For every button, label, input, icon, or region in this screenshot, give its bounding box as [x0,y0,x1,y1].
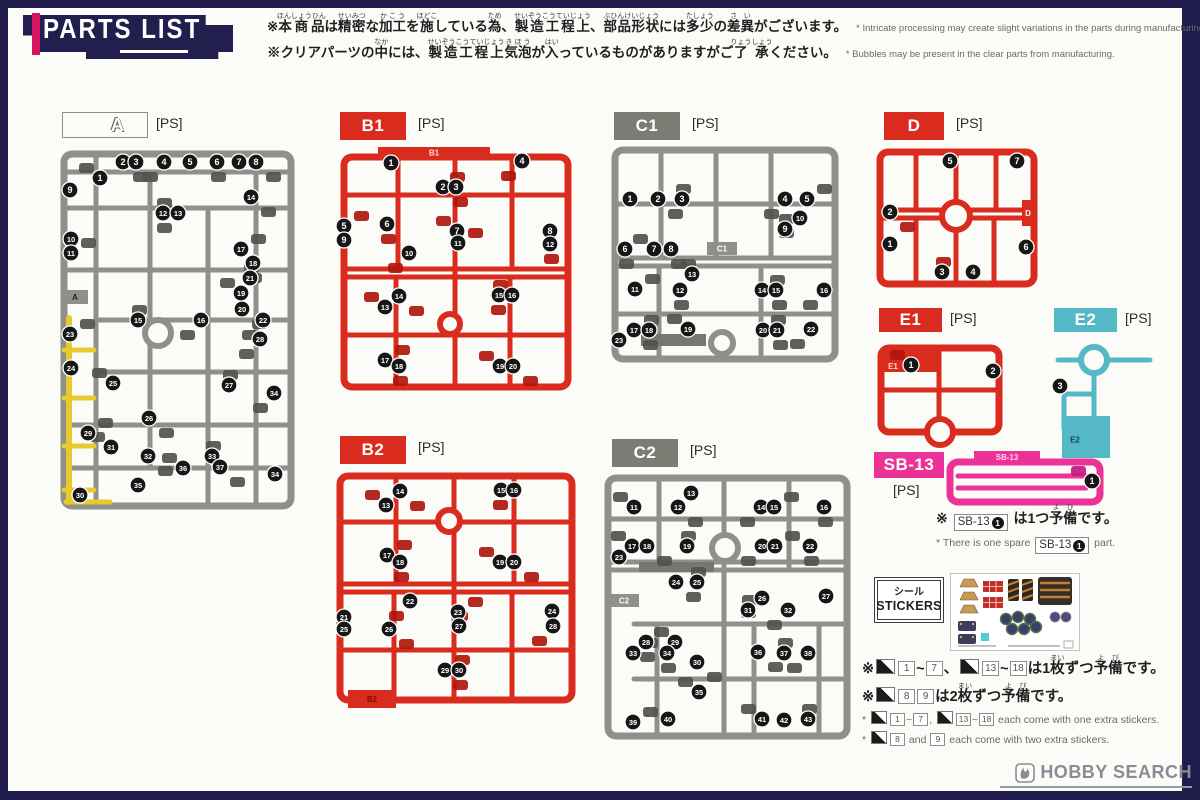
svg-text:30: 30 [76,491,84,500]
part-number-C2-40: 40 [660,711,676,727]
part-number-B2-22: 22 [402,593,418,609]
runner-sprue-SB-13: SB-131 [946,450,1108,508]
svg-text:5: 5 [804,194,809,204]
part-number-C1-19: 19 [680,321,696,337]
part-number-SB-13-1: 1 [1084,473,1100,489]
svg-text:16: 16 [510,486,518,495]
svg-text:17: 17 [628,542,636,551]
svg-text:D: D [1025,209,1031,218]
svg-text:18: 18 [643,542,651,551]
manufacturing-notes: ※本商品ほんしょうひんは精密せいみつな加工かこうを施ほどこしている為ため、製造工… [267,13,1200,65]
part-number-C1-3: 3 [674,191,690,207]
molded-part-shape [523,376,538,386]
svg-text:36: 36 [754,648,762,657]
part-ref-box: SB-131 [954,514,1008,531]
sticker-number-box: 13 [956,713,971,726]
svg-text:19: 19 [237,289,245,298]
part-number-A-15: 15 [130,312,146,328]
molded-part-shape [667,314,682,324]
molded-part-shape [790,339,805,349]
part-number-A-28: 28 [252,331,268,347]
svg-text:35: 35 [695,688,703,697]
svg-text:16: 16 [197,316,205,325]
svg-text:35: 35 [134,481,142,490]
part-number-A-37: 37 [212,459,228,475]
molded-part-shape [157,223,172,233]
part-number-A-12: 12 [155,205,171,221]
svg-text:20: 20 [510,558,518,567]
material-label-A: [PS] [156,115,182,131]
svg-text:9: 9 [341,235,346,245]
molded-part-shape [453,680,468,690]
molded-part-shape [524,572,539,582]
runner-label-SB-13: SB-13 [874,452,944,478]
svg-text:18: 18 [249,259,257,268]
svg-text:1: 1 [627,194,632,204]
svg-text:16: 16 [820,503,828,512]
svg-text:29: 29 [441,666,449,675]
part-number-C2-22: 22 [802,538,818,554]
sticker-number-box: 18 [1010,661,1027,676]
part-number-A-7: 7 [231,154,247,170]
sticker-number-box: 1 [898,661,915,676]
molded-part-shape [251,234,266,244]
part-number-B1-16: 16 [504,287,520,303]
part-number-B2-20: 20 [506,554,522,570]
svg-text:26: 26 [758,594,766,603]
molded-part-shape [479,547,494,557]
svg-text:16: 16 [820,286,828,295]
part-number-A-19: 19 [233,285,249,301]
part-number-A-34: 34 [267,466,283,482]
molded-part-shape [890,350,905,360]
runner-sprue-E1: E112 [877,344,1003,444]
svg-text:28: 28 [549,622,557,631]
part-number-C2-37: 37 [776,645,792,661]
page-title: PARTS LIST [43,14,201,46]
molded-part-shape [410,501,425,511]
svg-text:B2: B2 [367,695,378,704]
circled-part-number: 1 [992,517,1004,529]
sticker-number-box: 8 [898,689,915,704]
svg-text:13: 13 [382,501,390,510]
svg-text:15: 15 [770,503,778,512]
svg-text:23: 23 [454,608,462,617]
molded-part-shape [740,517,755,527]
sticker-number-box: 1 [890,713,905,726]
molded-part-shape [900,222,915,232]
circled-part-number: 1 [1073,540,1085,552]
molded-part-shape [640,652,655,662]
part-number-C2-21: 21 [767,538,783,554]
svg-text:17: 17 [381,356,389,365]
part-number-C1-22: 22 [803,321,819,337]
svg-text:4: 4 [519,156,524,166]
part-number-C2-32: 32 [780,602,796,618]
part-number-A-1: 1 [92,170,108,186]
svg-text:19: 19 [496,362,504,371]
part-number-B2-24: 24 [544,603,560,619]
part-number-C1-9: 9 [777,221,793,237]
part-number-B2-26: 26 [381,621,397,637]
sb13-note-en: * There is one spare SB-131 part. [936,537,1118,554]
svg-text:6: 6 [1023,242,1028,252]
svg-text:SB-13: SB-13 [996,453,1019,462]
svg-text:36: 36 [179,464,187,473]
svg-text:14: 14 [247,193,256,202]
part-number-C2-28: 28 [638,634,654,650]
svg-text:28: 28 [256,335,264,344]
svg-text:14: 14 [758,286,767,295]
spare-sticker-note-4: * 8 and 9 each come with two extra stick… [862,731,1165,746]
sticker-number-box: 9 [930,733,945,746]
svg-text:27: 27 [455,622,463,631]
part-number-C1-13: 13 [684,266,700,282]
runner-label-C2: C2 [612,439,678,467]
svg-text:2: 2 [120,157,125,167]
svg-text:24: 24 [548,607,557,616]
note-en-text: * Intricate processing may create slight… [856,23,1200,34]
part-number-A-9: 9 [62,182,78,198]
stickers-label-en: STICKERS [876,599,942,614]
sb13-spare-note: ※ SB-131 は1つ予備よびです。* There is one spare … [936,504,1118,554]
svg-text:4: 4 [970,267,975,277]
part-number-B1-9: 9 [336,232,352,248]
svg-text:12: 12 [676,286,684,295]
part-number-B1-3: 3 [448,179,464,195]
svg-text:20: 20 [238,305,246,314]
runner-label-A: A [62,112,148,138]
svg-text:14: 14 [395,292,404,301]
molded-part-shape [80,319,95,329]
molded-part-shape [158,466,173,476]
molded-part-shape [643,707,658,717]
svg-text:2: 2 [440,182,445,192]
svg-text:23: 23 [615,553,623,562]
stickers-label-jp: シール [894,587,924,599]
sticker-sheet-image [950,573,1080,651]
stickers-label-box: シール STICKERS [874,577,944,623]
part-number-E1-2: 2 [985,363,1001,379]
svg-text:20: 20 [509,362,517,371]
part-number-C2-13: 13 [683,485,699,501]
part-number-E1-1: 1 [903,357,919,373]
part-number-C1-11: 11 [627,281,643,297]
svg-text:12: 12 [159,209,167,218]
part-number-C1-1: 1 [622,191,638,207]
molded-part-shape [613,492,628,502]
svg-text:6: 6 [384,219,389,229]
molded-part-shape [468,228,483,238]
molded-part-shape [180,330,195,340]
svg-text:32: 32 [784,606,792,615]
part-number-B2-14: 14 [392,483,408,499]
part-number-C1-4: 4 [777,191,793,207]
part-number-C2-34: 34 [659,645,675,661]
sticker-number-box: 9 [917,689,934,704]
svg-text:14: 14 [757,503,766,512]
svg-text:30: 30 [455,666,463,675]
molded-part-shape [741,704,756,714]
svg-text:C2: C2 [619,597,630,606]
part-number-C1-5: 5 [799,191,815,207]
spare-sticker-note-1: ※1~7、13~18は1枚まいずつ予備よびです。 [862,655,1165,678]
molded-part-shape [365,490,380,500]
part-number-A-31: 31 [103,439,119,455]
runner-label-E1: E1 [879,308,942,332]
svg-text:19: 19 [684,325,692,334]
svg-text:3: 3 [1057,381,1062,391]
molded-part-shape [468,597,483,607]
svg-text:29: 29 [84,429,92,438]
part-number-C2-31: 31 [740,602,756,618]
part-number-C1-23: 23 [611,332,627,348]
material-label-C2: [PS] [690,442,716,458]
svg-text:12: 12 [674,503,682,512]
svg-text:6: 6 [622,244,627,254]
part-number-A-21: 21 [242,270,258,286]
svg-text:17: 17 [237,245,245,254]
svg-text:9: 9 [782,224,787,234]
spare-sticker-note-2: ※89は2枚まいずつ予備よびです。 [862,683,1165,706]
molded-part-shape [436,216,451,226]
svg-text:37: 37 [780,649,788,658]
sticker-peel-icon [960,659,979,674]
runner-sprue-D: D1234567 [876,148,1040,290]
svg-text:29: 29 [671,638,679,647]
molded-part-shape [707,672,722,682]
molded-part-shape [804,556,819,566]
part-number-A-20: 20 [234,301,250,317]
part-number-A-35: 35 [130,477,146,493]
svg-text:32: 32 [144,452,152,461]
svg-text:40: 40 [664,715,672,724]
part-number-C2-41: 41 [754,711,770,727]
svg-text:11: 11 [67,249,75,258]
svg-text:31: 31 [744,606,752,615]
part-number-A-5: 5 [182,154,198,170]
svg-text:25: 25 [693,578,701,587]
molded-part-shape [220,278,235,288]
molded-part-shape [611,531,626,541]
molded-part-shape [654,627,669,637]
svg-text:17: 17 [630,326,638,335]
part-number-A-18: 18 [245,255,261,271]
note-en-text: * Bubbles may be present in the clear pa… [846,49,1115,60]
svg-text:13: 13 [174,209,182,218]
runner-sprue-B1: B11234567891011121314151617181920 [340,147,572,393]
svg-text:13: 13 [381,303,389,312]
svg-text:18: 18 [645,326,653,335]
part-number-A-23: 23 [62,326,78,342]
svg-text:4: 4 [161,157,166,167]
molded-part-shape [397,540,412,550]
svg-text:34: 34 [271,470,280,479]
runner-sprue-E2: E23 [1050,338,1164,462]
part-number-C2-23: 23 [611,549,627,565]
svg-text:3: 3 [133,157,138,167]
runner-sprue-C2: C211121314151617181920212223242526272829… [604,474,851,740]
part-number-B2-27: 27 [451,618,467,634]
svg-text:10: 10 [405,249,413,258]
part-number-A-30: 30 [72,487,88,503]
molded-part-shape [619,259,634,269]
molded-part-shape [394,572,409,582]
svg-text:27: 27 [225,381,233,390]
part-number-B2-28: 28 [545,618,561,634]
molded-part-shape [159,428,174,438]
svg-text:19: 19 [683,542,691,551]
svg-text:15: 15 [134,316,142,325]
part-number-C1-21: 21 [769,322,785,338]
spare-sticker-note-3: * 1~7, 13~18 each come with one extra st… [862,711,1165,726]
svg-text:22: 22 [807,325,815,334]
molded-part-shape [354,211,369,221]
part-number-C2-12: 12 [670,499,686,515]
sticker-number-box: 18 [979,713,994,726]
part-number-C2-42: 42 [776,712,792,728]
runner-sprue-C1: C11234567891011121314151617181920212223 [611,146,841,366]
part-number-A-22: 22 [255,312,271,328]
molded-part-shape [818,517,833,527]
part-number-A-24: 24 [63,360,79,376]
svg-text:6: 6 [214,157,219,167]
molded-part-shape [162,453,177,463]
molded-part-shape [633,234,648,244]
part-number-A-26: 26 [141,410,157,426]
part-number-C2-15: 15 [766,499,782,515]
svg-text:19: 19 [496,558,504,567]
part-number-C1-12: 12 [672,282,688,298]
svg-text:34: 34 [270,389,279,398]
sticker-peel-icon [876,687,895,702]
part-number-E2-3: 3 [1052,378,1068,394]
molded-part-shape [643,340,658,350]
svg-text:1: 1 [97,173,102,183]
part-number-A-13: 13 [170,205,186,221]
svg-text:8: 8 [253,157,258,167]
stickers-label-inner: シール STICKERS [877,580,941,620]
part-number-C1-10: 10 [792,210,808,226]
sticker-peel-icon [871,731,887,744]
runner-sprue-B2: B2131415161718192021222324252627282930 [336,472,576,712]
svg-text:10: 10 [67,235,75,244]
hobby-search-watermark: HOBBY SEARCH [1000,762,1192,788]
part-number-B2-25: 25 [336,621,352,637]
runner-label-B1: B1 [340,112,406,140]
molded-part-shape [817,184,832,194]
molded-part-shape [92,368,107,378]
part-number-C2-19: 19 [679,538,695,554]
part-number-B2-16: 16 [506,482,522,498]
part-number-D-1: 1 [882,236,898,252]
svg-text:41: 41 [758,715,766,724]
runner-label-B2: B2 [340,436,406,464]
part-number-C2-33: 33 [625,645,641,661]
svg-text:C1: C1 [717,245,728,254]
molded-part-shape [395,345,410,355]
svg-text:1: 1 [388,158,393,168]
molded-part-shape [1071,466,1086,476]
svg-text:7: 7 [1014,156,1019,166]
svg-text:2: 2 [887,207,892,217]
molded-part-shape [98,418,113,428]
svg-text:18: 18 [395,362,403,371]
svg-text:3: 3 [939,267,944,277]
molded-part-shape [501,171,516,181]
svg-text:38: 38 [804,649,812,658]
part-number-A-27: 27 [221,377,237,393]
part-number-C1-7: 7 [646,241,662,257]
svg-text:16: 16 [508,291,516,300]
svg-text:18: 18 [396,558,404,567]
part-number-B1-11: 11 [450,235,466,251]
runner-label-E2: E2 [1054,308,1117,332]
sticker-peel-icon [876,659,895,674]
sticker-number-box: 8 [890,733,905,746]
molded-part-shape [674,300,689,310]
svg-text:26: 26 [145,414,153,423]
part-number-B2-13: 13 [378,497,394,513]
molded-part-shape [657,556,672,566]
svg-text:20: 20 [759,326,767,335]
runner-label-C1: C1 [614,112,680,140]
part-number-D-3: 3 [934,264,950,280]
sticker-peel-icon [871,711,887,724]
part-number-D-2: 2 [882,204,898,220]
part-number-A-32: 32 [140,448,156,464]
svg-text:14: 14 [396,487,405,496]
molded-part-shape [686,592,701,602]
molded-part-shape [741,556,756,566]
part-number-C1-17: 17 [626,322,642,338]
part-number-B1-10: 10 [401,245,417,261]
molded-part-shape [79,163,94,173]
svg-text:22: 22 [259,316,267,325]
part-number-C1-8: 8 [663,241,679,257]
svg-text:33: 33 [629,649,637,658]
molded-part-shape [764,209,779,219]
part-number-C2-43: 43 [800,711,816,727]
molded-part-shape [787,663,802,673]
molded-part-shape [81,238,96,248]
molded-part-shape [803,300,818,310]
svg-text:34: 34 [663,649,672,658]
molded-part-shape [767,620,782,630]
sticker-spare-notes: ※1~7、13~18は1枚まいずつ予備よびです。※89は2枚まいずつ予備よびです… [862,655,1165,751]
part-number-C1-6: 6 [617,241,633,257]
svg-text:31: 31 [107,443,115,452]
svg-text:42: 42 [780,716,788,725]
hobby-search-logo-text: HOBBY SEARCH [1040,762,1192,783]
part-number-C2-11: 11 [626,499,642,515]
svg-text:15: 15 [495,291,503,300]
sticker-number-box: 7 [926,661,943,676]
molded-part-shape [409,306,424,316]
material-label-B2: [PS] [418,439,444,455]
part-number-A-34: 34 [266,385,282,401]
title-underline [120,50,188,53]
part-number-C2-27: 27 [818,588,834,604]
svg-text:30: 30 [693,658,701,667]
part-number-B1-1: 1 [383,155,399,171]
material-label-D: [PS] [956,115,982,131]
svg-text:26: 26 [385,625,393,634]
svg-text:11: 11 [631,285,639,294]
svg-text:15: 15 [772,286,780,295]
note-jp-text: ※本商品ほんしょうひんは精密せいみつな加工かこうを施ほどこしている為ため、製造工… [267,19,847,34]
part-number-B2-18: 18 [392,554,408,570]
